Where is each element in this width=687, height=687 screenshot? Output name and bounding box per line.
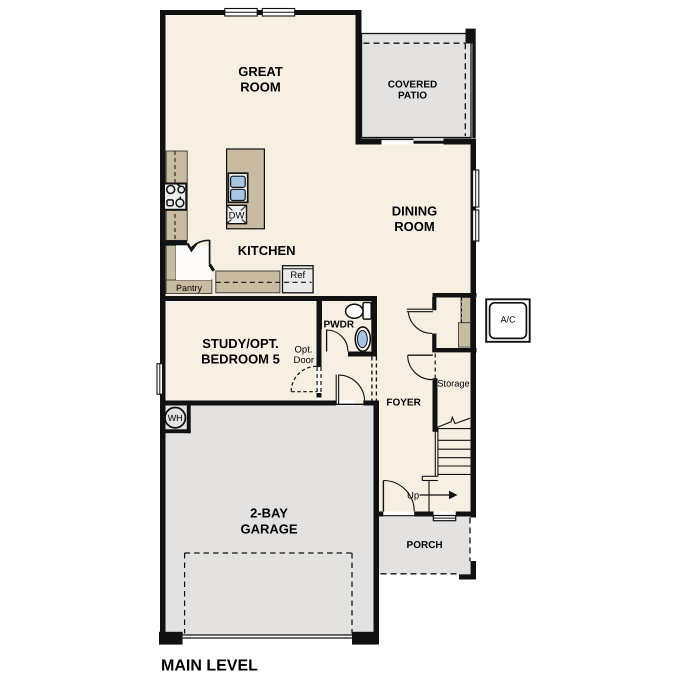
svg-text:WH: WH: [168, 413, 183, 423]
svg-text:DW: DW: [229, 211, 245, 222]
svg-text:FOYER: FOYER: [386, 397, 421, 408]
svg-text:Pantry: Pantry: [176, 283, 203, 293]
svg-text:Opt.: Opt.: [295, 345, 313, 356]
svg-text:Up: Up: [407, 490, 419, 501]
svg-text:GREAT: GREAT: [238, 64, 283, 79]
svg-text:ROOM: ROOM: [394, 219, 434, 234]
svg-text:Ref: Ref: [290, 270, 305, 281]
svg-text:COVERED: COVERED: [388, 80, 437, 91]
svg-text:GARAGE: GARAGE: [240, 521, 297, 536]
svg-text:MAIN LEVEL: MAIN LEVEL: [161, 658, 258, 675]
svg-text:2-BAY: 2-BAY: [250, 506, 288, 521]
svg-text:Door: Door: [294, 355, 315, 366]
svg-text:PORCH: PORCH: [407, 540, 443, 551]
svg-text:DINING: DINING: [392, 204, 438, 219]
svg-text:KITCHEN: KITCHEN: [238, 243, 296, 258]
svg-text:A/C: A/C: [500, 315, 516, 325]
svg-text:PATIO: PATIO: [398, 90, 427, 101]
svg-text:PWDR: PWDR: [324, 320, 355, 331]
svg-text:ROOM: ROOM: [240, 79, 280, 94]
svg-text:Storage: Storage: [437, 378, 469, 388]
svg-text:BEDROOM 5: BEDROOM 5: [201, 351, 280, 366]
svg-text:STUDY/OPT.: STUDY/OPT.: [202, 336, 279, 351]
